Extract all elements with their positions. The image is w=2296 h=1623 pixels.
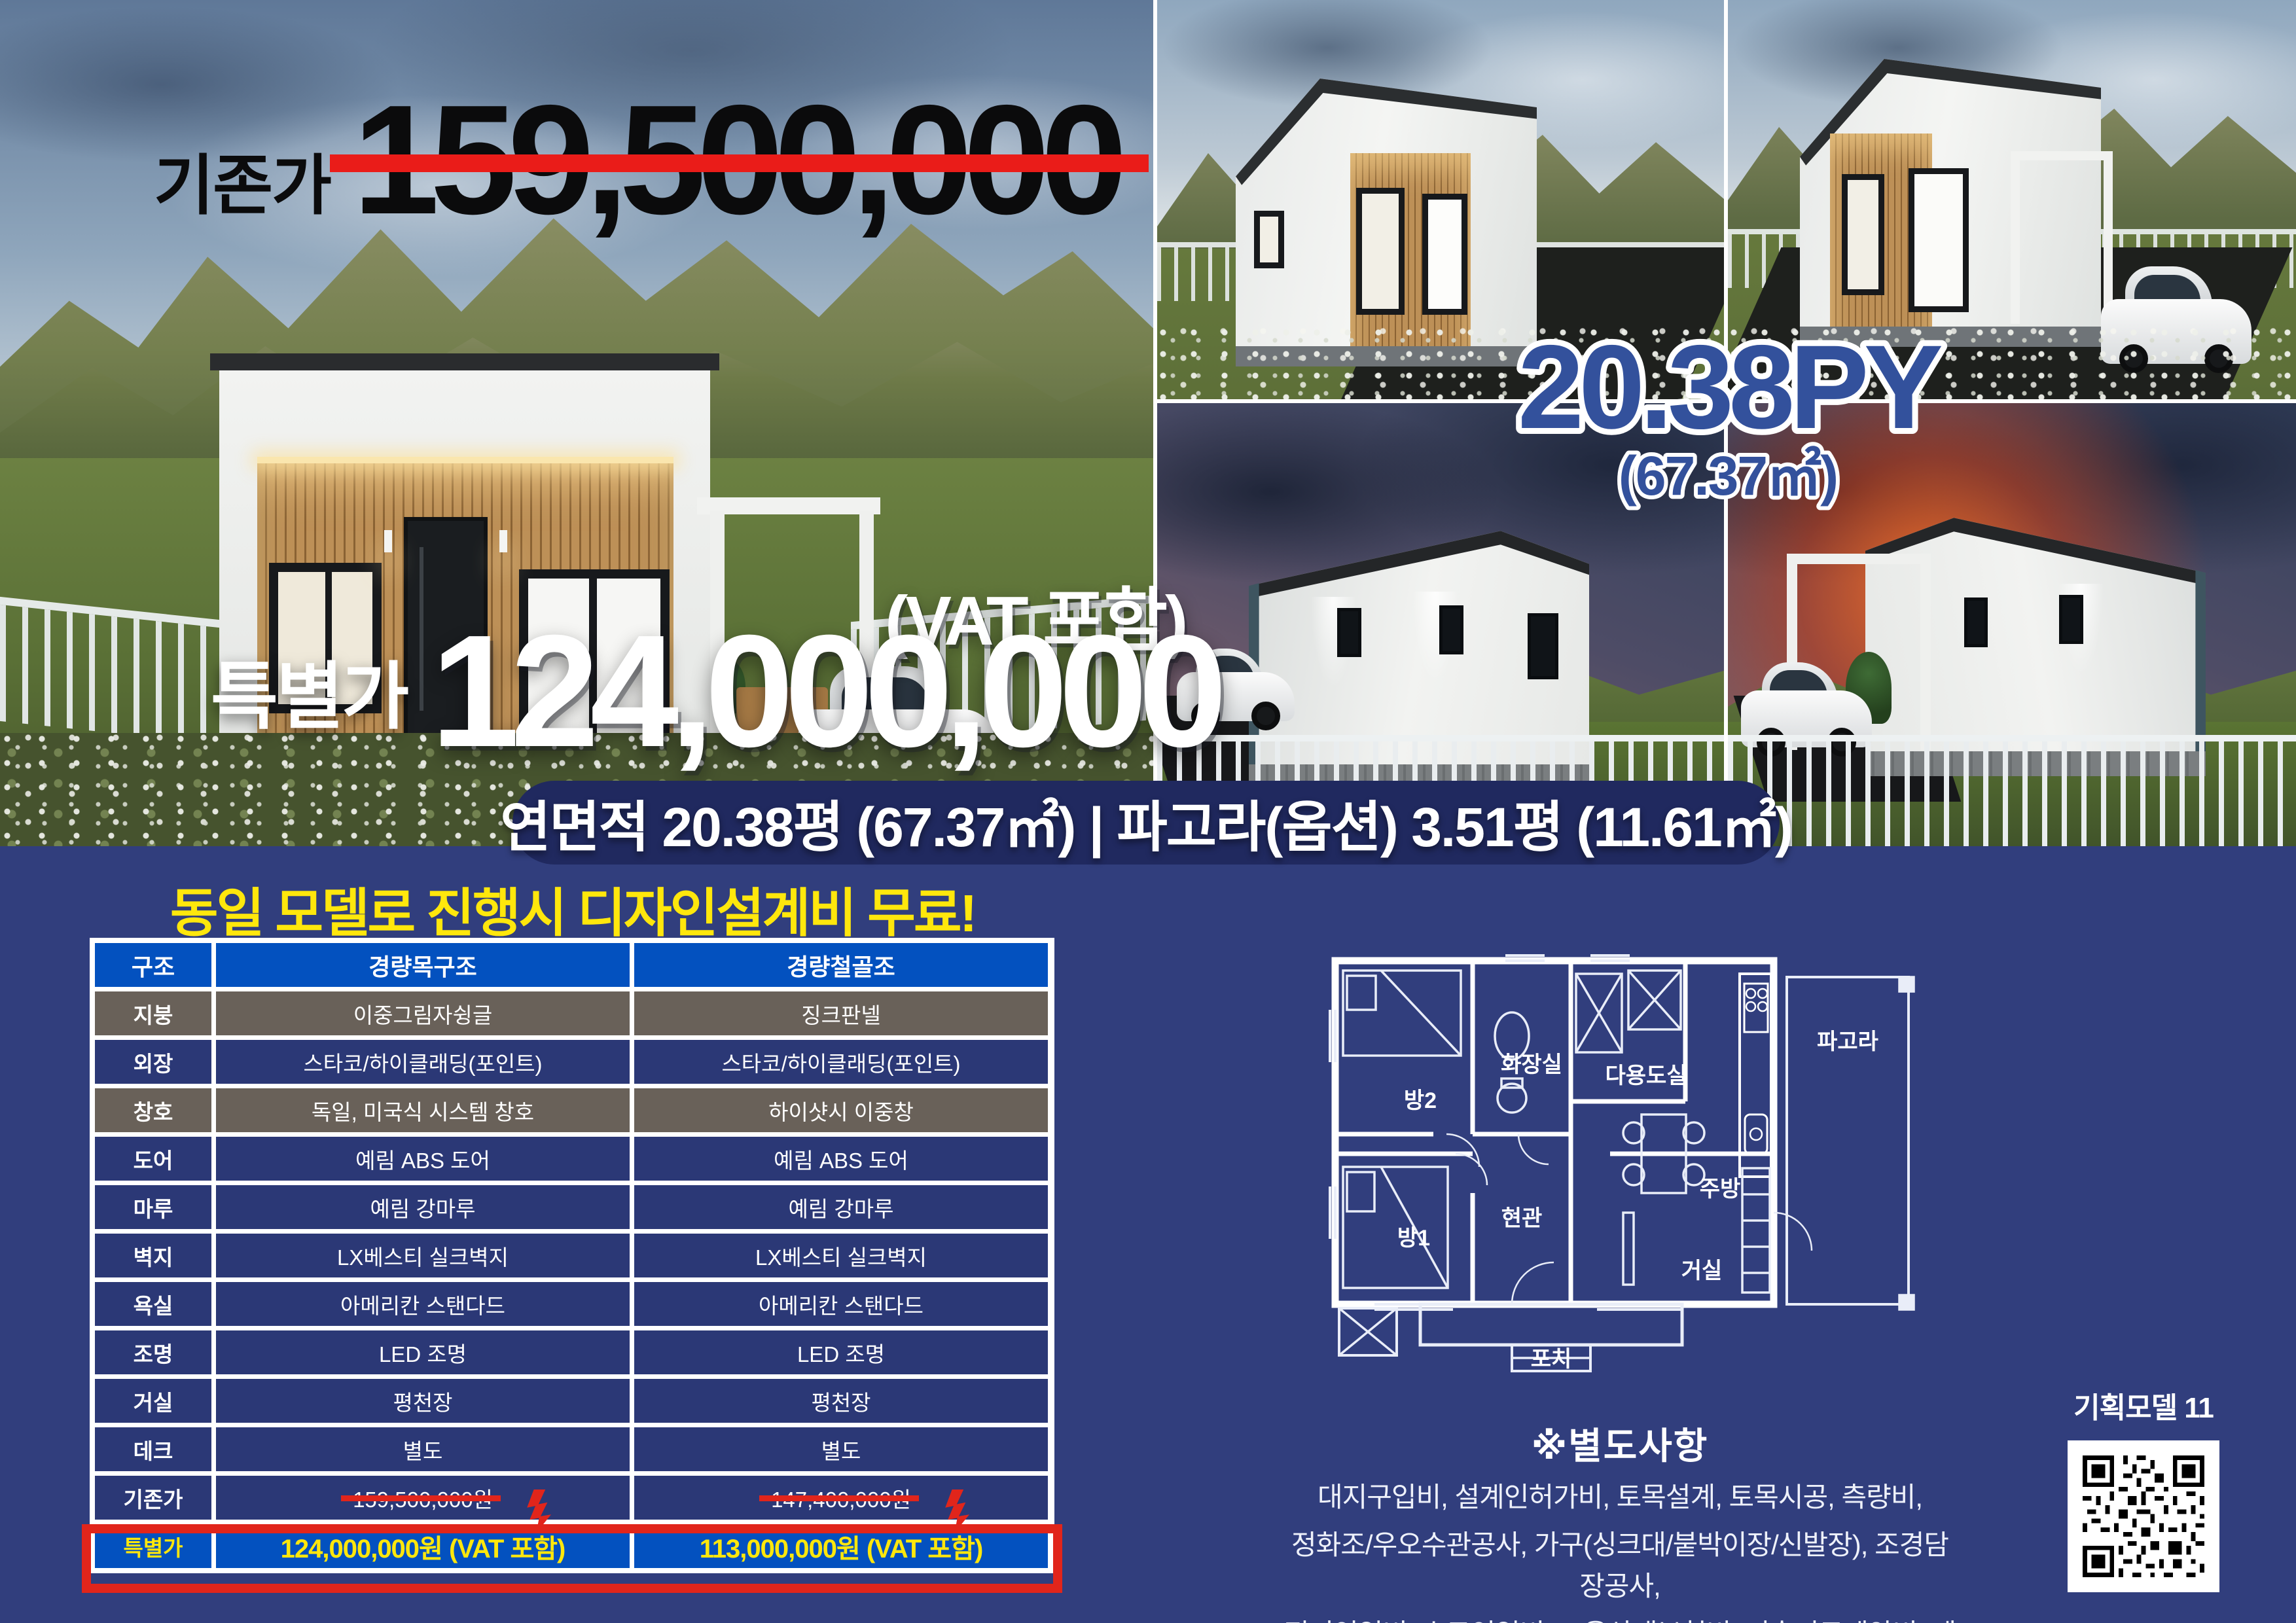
wall-light (384, 530, 392, 552)
spec-cell: 별도 (216, 1427, 630, 1471)
original-price-wrap: 159,500,000 (353, 71, 1119, 249)
floor-plan-furniture (1330, 955, 1914, 1371)
spec-old-price-steel: 147,400,000원 (634, 1476, 1048, 1520)
room-label: 다용도실 (1605, 1063, 1687, 1088)
area-summary-banner: 연면적 20.38평 (67.37㎡) | 파고라(옵션) 3.51평 (11.… (512, 781, 1780, 865)
area-size-m2-text: (67.37㎡) (1619, 445, 1837, 507)
special-price-block: 특별가 124,000,000 (211, 615, 1218, 767)
window (1909, 168, 1969, 312)
window (1842, 174, 1884, 295)
fence-left (0, 597, 226, 745)
spec-cell: 스타코/하이클래딩(포인트) (216, 1040, 630, 1084)
extras-line: 전기인입비, 수도인입비, 고용산재보험비, 기술지도계약비, 데크공사 (1283, 1613, 1957, 1623)
hero-section: 기존가 159,500,000 (VAT 포함) 특별가 124,000,000… (0, 0, 2296, 846)
qr-code (2068, 1440, 2219, 1592)
info-section: 동일 모델로 진행시 디자인설계비 무료! 구조 경량목구조 경량철골조 지붕 … (0, 846, 2296, 1623)
spec-row-label: 지붕 (95, 991, 211, 1035)
strikethrough-bar (330, 154, 1149, 172)
spec-cell: LED 조명 (634, 1330, 1048, 1374)
window-small (1337, 608, 1361, 658)
eave-led-strip (257, 457, 673, 463)
porch-pergola-frame (2011, 151, 2113, 324)
spec-col-header: 구조 (95, 943, 211, 987)
spec-cell: 독일, 미국식 시스템 창호 (216, 1088, 630, 1132)
spec-special-price-wood: 124,000,000원 (VAT 포함) (216, 1524, 630, 1568)
spec-cell: 평천장 (634, 1379, 1048, 1423)
spec-cell: 평천장 (216, 1379, 630, 1423)
window-small (2059, 595, 2083, 645)
spec-row-label: 조명 (95, 1330, 211, 1374)
struck-price: 147,400,000원 (767, 1482, 915, 1514)
spec-row-label: 마루 (95, 1185, 211, 1229)
house-render-gable (1800, 59, 2101, 347)
extras-block: ※별도사항 대지구입비, 설계인허가비, 토목설계, 토목시공, 측량비, 정화… (1283, 1417, 1957, 1623)
original-price-label: 기존가 (154, 93, 331, 227)
spec-row-label: 기존가 (95, 1476, 211, 1520)
spec-old-price-wood: 159,500,000원 (216, 1476, 630, 1520)
window (1356, 188, 1405, 315)
pergola-beam (697, 497, 880, 514)
room-label: 방2 (1404, 1088, 1437, 1113)
spec-cell: 예림 ABS 도어 (634, 1137, 1048, 1181)
room-label: 방1 (1397, 1226, 1430, 1251)
room-label: 포치 (1531, 1347, 1572, 1372)
flat-roof (210, 353, 719, 370)
window-small (1439, 605, 1463, 655)
bed (1343, 971, 1461, 1056)
spec-row-label: 데크 (95, 1427, 211, 1471)
spec-cell: 별도 (634, 1427, 1048, 1471)
spec-cell: 스타코/하이클래딩(포인트) (634, 1040, 1048, 1084)
model-block: 기획모델 11 (2019, 1384, 2268, 1592)
model-label: 기획모델 11 (2019, 1384, 2268, 1426)
spec-row-label: 거실 (95, 1379, 211, 1423)
car-wheel (1251, 702, 1280, 730)
extras-line: 대지구입비, 설계인허가비, 토목설계, 토목시공, 측량비, (1283, 1476, 1957, 1518)
area-size-py-text: 20.38PY (1518, 322, 1942, 454)
spec-cell: 이중그림자슁글 (216, 991, 630, 1035)
struck-price: 159,500,000원 (349, 1482, 497, 1514)
spec-row-label: 벽지 (95, 1234, 211, 1277)
spec-row-label: 창호 (95, 1088, 211, 1132)
floor-plan-labels: 방2 화장실 다용도실 주방 현관 거실 방1 포치 파고라 (1397, 1029, 1878, 1372)
spec-row-label: 욕실 (95, 1282, 211, 1326)
room-label: 화장실 (1501, 1052, 1562, 1077)
spec-col-header: 경량철골조 (634, 943, 1048, 987)
spec-cell: LX베스티 실크벽지 (634, 1234, 1048, 1277)
spec-cell: 예림 ABS 도어 (216, 1137, 630, 1181)
promo-headline: 동일 모델로 진행시 디자인설계비 무료! (92, 871, 1054, 947)
room-label: 파고라 (1817, 1029, 1878, 1054)
spec-special-label: 특별가 (95, 1524, 211, 1568)
spec-row-label: 외장 (95, 1040, 211, 1084)
spec-cell: LX베스티 실크벽지 (216, 1234, 630, 1277)
fence (1728, 735, 2296, 846)
original-price-block: 기존가 159,500,000 (154, 71, 1119, 249)
pergola-outline (1787, 977, 1909, 1304)
bed (1343, 1167, 1448, 1288)
tv-console (1623, 1213, 1634, 1285)
spec-cell: 아메리칸 스탠다드 (634, 1282, 1048, 1326)
area-size-m2: (67.37㎡) (1538, 435, 1918, 516)
spec-cell: 징크판넬 (634, 991, 1048, 1035)
window (1422, 194, 1467, 315)
special-price-label: 특별가 (211, 637, 407, 767)
spec-special-price-steel: 113,000,000원 (VAT 포함) (634, 1524, 1048, 1568)
wall-light (499, 530, 507, 552)
floor-plan-walls (1335, 961, 1774, 1304)
spec-cell: 아메리칸 스탠다드 (216, 1282, 630, 1326)
floor-plan: 방2 화장실 다용도실 주방 현관 거실 방1 포치 파고라 (1316, 938, 1918, 1396)
spec-cell: 예림 강마루 (634, 1185, 1048, 1229)
spec-cell: LED 조명 (216, 1330, 630, 1374)
extras-line: 정화조/우오수관공사, 가구(싱크대/붙박이장/신발장), 조경담장공사, (1283, 1524, 1957, 1607)
window-small (1964, 597, 1988, 647)
extras-title: ※별도사항 (1283, 1417, 1957, 1470)
spec-cell: 하이샷시 이중창 (634, 1088, 1048, 1132)
spec-cell: 예림 강마루 (216, 1185, 630, 1229)
window-small (1528, 613, 1558, 679)
room-label: 주방 (1700, 1177, 1741, 1202)
spec-table: 구조 경량목구조 경량철골조 지붕 이중그림자슁글 징크판넬 외장 스타코/하이… (90, 938, 1054, 1573)
special-price-value: 124,000,000 (431, 615, 1218, 767)
area-summary-text: 연면적 20.38평 (67.37㎡) | 파고라(옵션) 3.51평 (11.… (500, 783, 1792, 863)
spec-row-label: 도어 (95, 1137, 211, 1181)
qr-code-graphic (2078, 1451, 2209, 1582)
spec-col-header: 경량목구조 (216, 943, 630, 987)
room-label: 현관 (1501, 1206, 1543, 1231)
window-small (1254, 211, 1284, 268)
room-label: 거실 (1681, 1258, 1723, 1283)
poster: 기존가 159,500,000 (VAT 포함) 특별가 124,000,000… (0, 0, 2296, 1623)
